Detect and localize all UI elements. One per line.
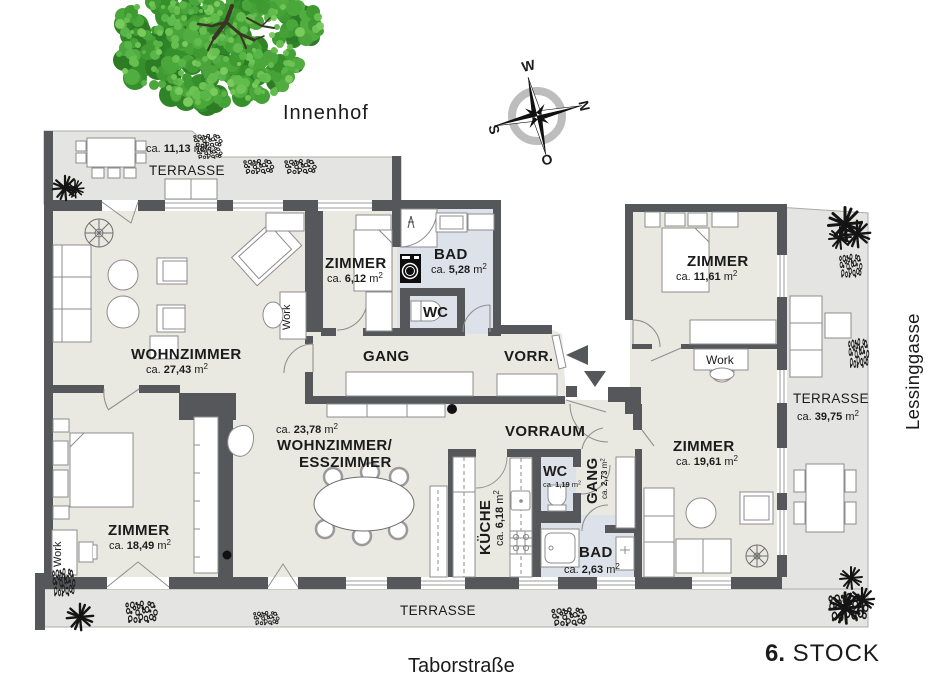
svg-text:WC: WC xyxy=(543,464,568,480)
svg-text:ZIMMER: ZIMMER xyxy=(673,438,735,455)
svg-text:Work: Work xyxy=(281,304,293,330)
svg-text:ZIMMER: ZIMMER xyxy=(108,522,170,539)
svg-text:ca. 5,28 m2: ca. 5,28 m2 xyxy=(431,262,487,276)
svg-text:WOHNZIMMER/: WOHNZIMMER/ xyxy=(277,437,393,454)
svg-text:ca. 2,73 m2: ca. 2,73 m2 xyxy=(600,458,609,499)
svg-text:VORRAUM: VORRAUM xyxy=(505,423,585,440)
svg-text:KÜCHE: KÜCHE xyxy=(477,500,494,555)
svg-text:Taborstraße: Taborstraße xyxy=(408,655,515,677)
svg-text:ca. 39,75 m2: ca. 39,75 m2 xyxy=(797,409,860,423)
svg-text:WOHNZIMMER: WOHNZIMMER xyxy=(131,346,242,363)
svg-text:ZIMMER: ZIMMER xyxy=(687,253,749,270)
svg-text:BAD: BAD xyxy=(434,246,468,263)
svg-text:ca. 23,78 m2: ca. 23,78 m2 xyxy=(276,422,339,436)
svg-text:TERRASSE: TERRASSE xyxy=(149,163,225,178)
svg-text:ca. 1,19 m2: ca. 1,19 m2 xyxy=(543,480,581,489)
svg-text:Work: Work xyxy=(706,353,735,367)
svg-text:VORR.: VORR. xyxy=(504,348,554,365)
svg-text:ca. 11,13 m2: ca. 11,13 m2 xyxy=(146,141,208,155)
svg-text:BAD: BAD xyxy=(579,544,613,561)
svg-text:ca. 2,63 m2: ca. 2,63 m2 xyxy=(564,562,620,576)
svg-text:ca. 11,61 m2: ca. 11,61 m2 xyxy=(676,269,738,283)
svg-text:Innenhof: Innenhof xyxy=(283,102,369,124)
svg-text:GANG: GANG xyxy=(584,457,601,504)
svg-text:Lessinggasse: Lessinggasse xyxy=(902,313,923,430)
svg-text:ca. 27,43 m2: ca. 27,43 m2 xyxy=(146,362,209,376)
svg-text:TERRASSE: TERRASSE xyxy=(400,603,476,618)
svg-text:TERRASSE: TERRASSE xyxy=(793,391,869,406)
svg-text:Work: Work xyxy=(52,541,64,567)
svg-text:6. STOCK: 6. STOCK xyxy=(765,640,880,667)
svg-text:ca. 6,18 m2: ca. 6,18 m2 xyxy=(492,490,506,546)
svg-text:ZIMMER: ZIMMER xyxy=(325,255,387,272)
svg-text:ca. 6,12 m2: ca. 6,12 m2 xyxy=(327,271,383,285)
svg-text:WC: WC xyxy=(423,304,448,321)
svg-text:ca. 18,49 m2: ca. 18,49 m2 xyxy=(109,538,172,552)
svg-text:ESSZIMMER: ESSZIMMER xyxy=(299,454,392,471)
svg-text:ca. 19,61 m2: ca. 19,61 m2 xyxy=(676,454,739,468)
svg-text:GANG: GANG xyxy=(363,348,410,365)
